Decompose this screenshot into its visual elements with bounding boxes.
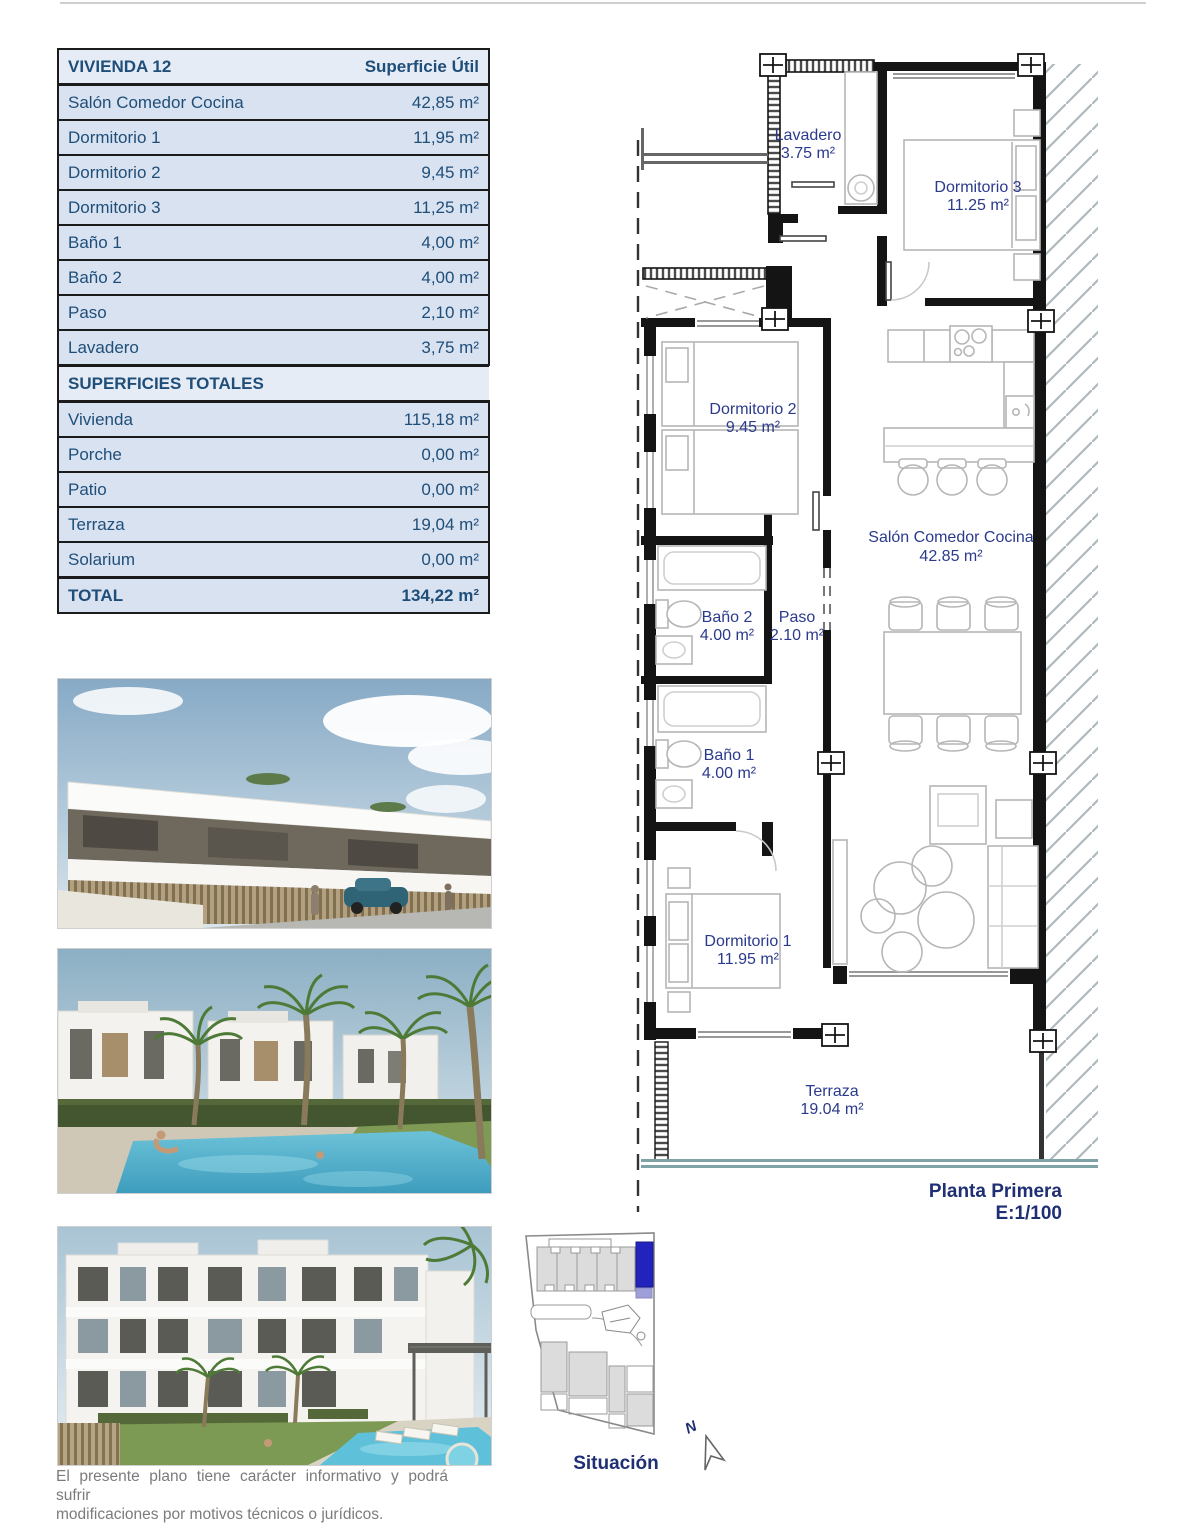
floor-plan: Lavadero 3.75 m² Dormitorio 3 11.25 m² D…	[0, 0, 1204, 1524]
room-area-paso: 2.10 m²	[770, 627, 825, 644]
plan-caption-line1: Planta Primera	[929, 1181, 1062, 1202]
highlighted-unit	[636, 1242, 653, 1287]
site-plan-label: Situación	[573, 1453, 659, 1474]
room-area-salon: 42.85 m²	[919, 548, 983, 565]
plan-sheet: VIVIENDA 12 Superficie Útil Salón Comedo…	[0, 0, 1204, 1524]
room-label-dormitorio1: Dormitorio 1	[704, 933, 791, 950]
room-area-terraza: 19.04 m²	[800, 1101, 864, 1118]
terrace-rail-hatch	[655, 1042, 668, 1160]
room-area-dormitorio2: 9.45 m²	[726, 419, 781, 436]
plan-caption-line2: E:1/100	[995, 1203, 1062, 1224]
room-area-bano2: 4.00 m²	[700, 627, 755, 644]
terrace-edge-line	[641, 1159, 1098, 1162]
north-arrow-icon: N	[683, 1417, 724, 1470]
room-area-dormitorio3: 11.25 m²	[947, 197, 1010, 214]
terrace-edge-line	[641, 1165, 1098, 1168]
site-plan: Situación	[526, 1233, 659, 1474]
room-label-paso: Paso	[779, 609, 816, 626]
entry-swing-dashes	[646, 286, 764, 318]
room-label-salon: Salón Comedor Cocina	[868, 529, 1034, 546]
room-area-lavadero: 3.75 m²	[781, 145, 836, 162]
party-wall-hatch	[1046, 64, 1098, 1162]
room-label-lavadero: Lavadero	[775, 127, 842, 144]
door-opening-dashed	[824, 568, 830, 630]
room-label-terraza: Terraza	[805, 1083, 858, 1100]
room-label-dormitorio2: Dormitorio 2	[709, 401, 796, 418]
room-area-dormitorio1: 11.95 m²	[717, 951, 780, 968]
room-area-bano1: 4.00 m²	[702, 765, 757, 782]
room-label-dormitorio3: Dormitorio 3	[934, 179, 1021, 196]
room-label-bano1: Baño 1	[704, 747, 755, 764]
north-label: N	[683, 1417, 701, 1437]
room-label-bano2: Baño 2	[702, 609, 753, 626]
